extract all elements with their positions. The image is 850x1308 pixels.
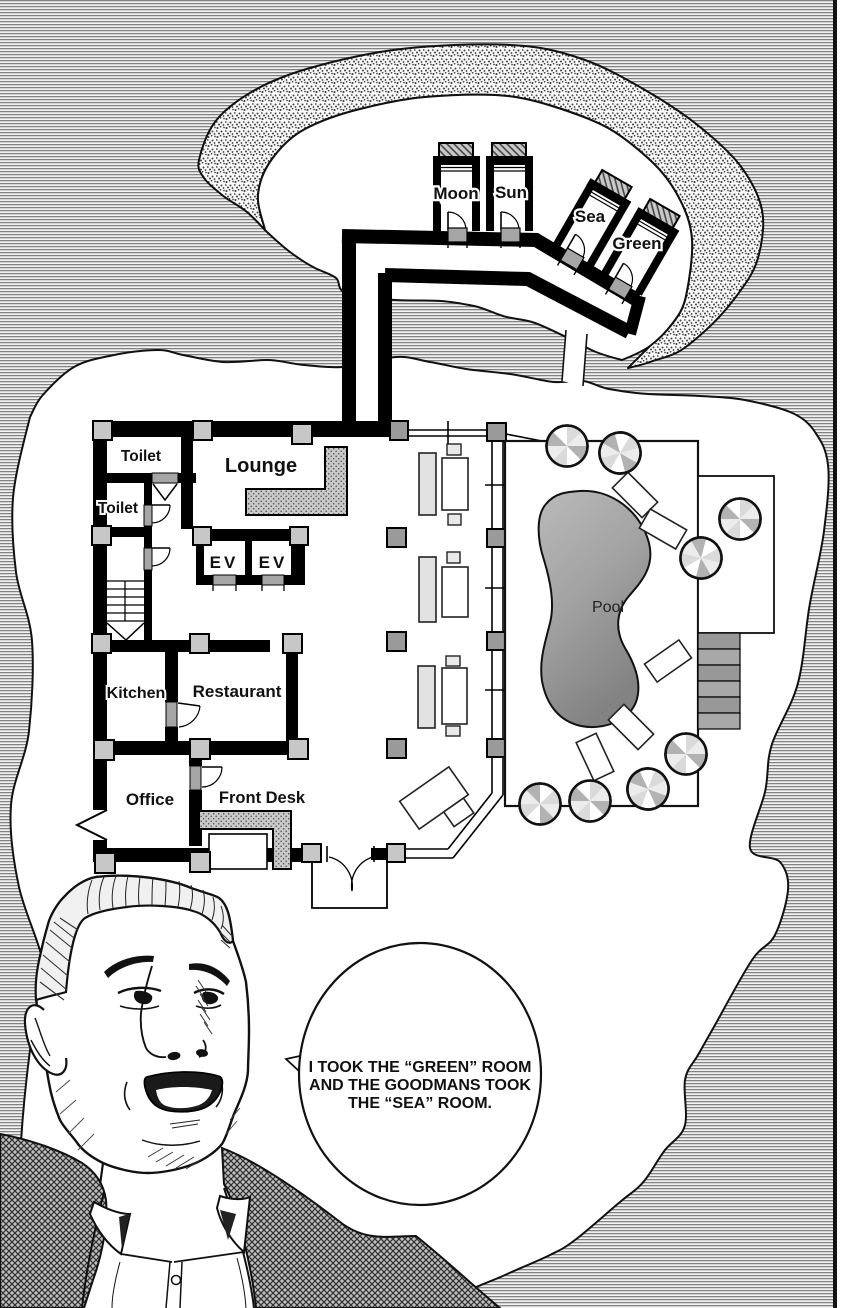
svg-text:Kitchen: Kitchen	[107, 685, 166, 702]
svg-text:Green: Green	[612, 234, 661, 253]
svg-text:Sea: Sea	[575, 207, 606, 226]
svg-text:Moon: Moon	[433, 184, 478, 203]
svg-text:Toilet: Toilet	[98, 500, 138, 517]
svg-text:Front Desk: Front Desk	[219, 789, 306, 807]
svg-text:THE “SEA” ROOM.: THE “SEA” ROOM.	[348, 1095, 492, 1112]
svg-text:Office: Office	[126, 790, 174, 809]
svg-text:EV: EV	[259, 553, 288, 572]
svg-text:Restaurant: Restaurant	[193, 682, 282, 701]
svg-text:Toilet: Toilet	[121, 448, 161, 465]
svg-text:Lounge: Lounge	[225, 455, 297, 477]
svg-text:I TOOK THE “GREEN” ROOM: I TOOK THE “GREEN” ROOM	[309, 1059, 532, 1076]
svg-text:Sun: Sun	[495, 183, 527, 202]
svg-text:Pool: Pool	[592, 599, 624, 616]
svg-text:AND THE GOODMANS TOOK: AND THE GOODMANS TOOK	[309, 1077, 531, 1094]
svg-text:EV: EV	[210, 553, 239, 572]
